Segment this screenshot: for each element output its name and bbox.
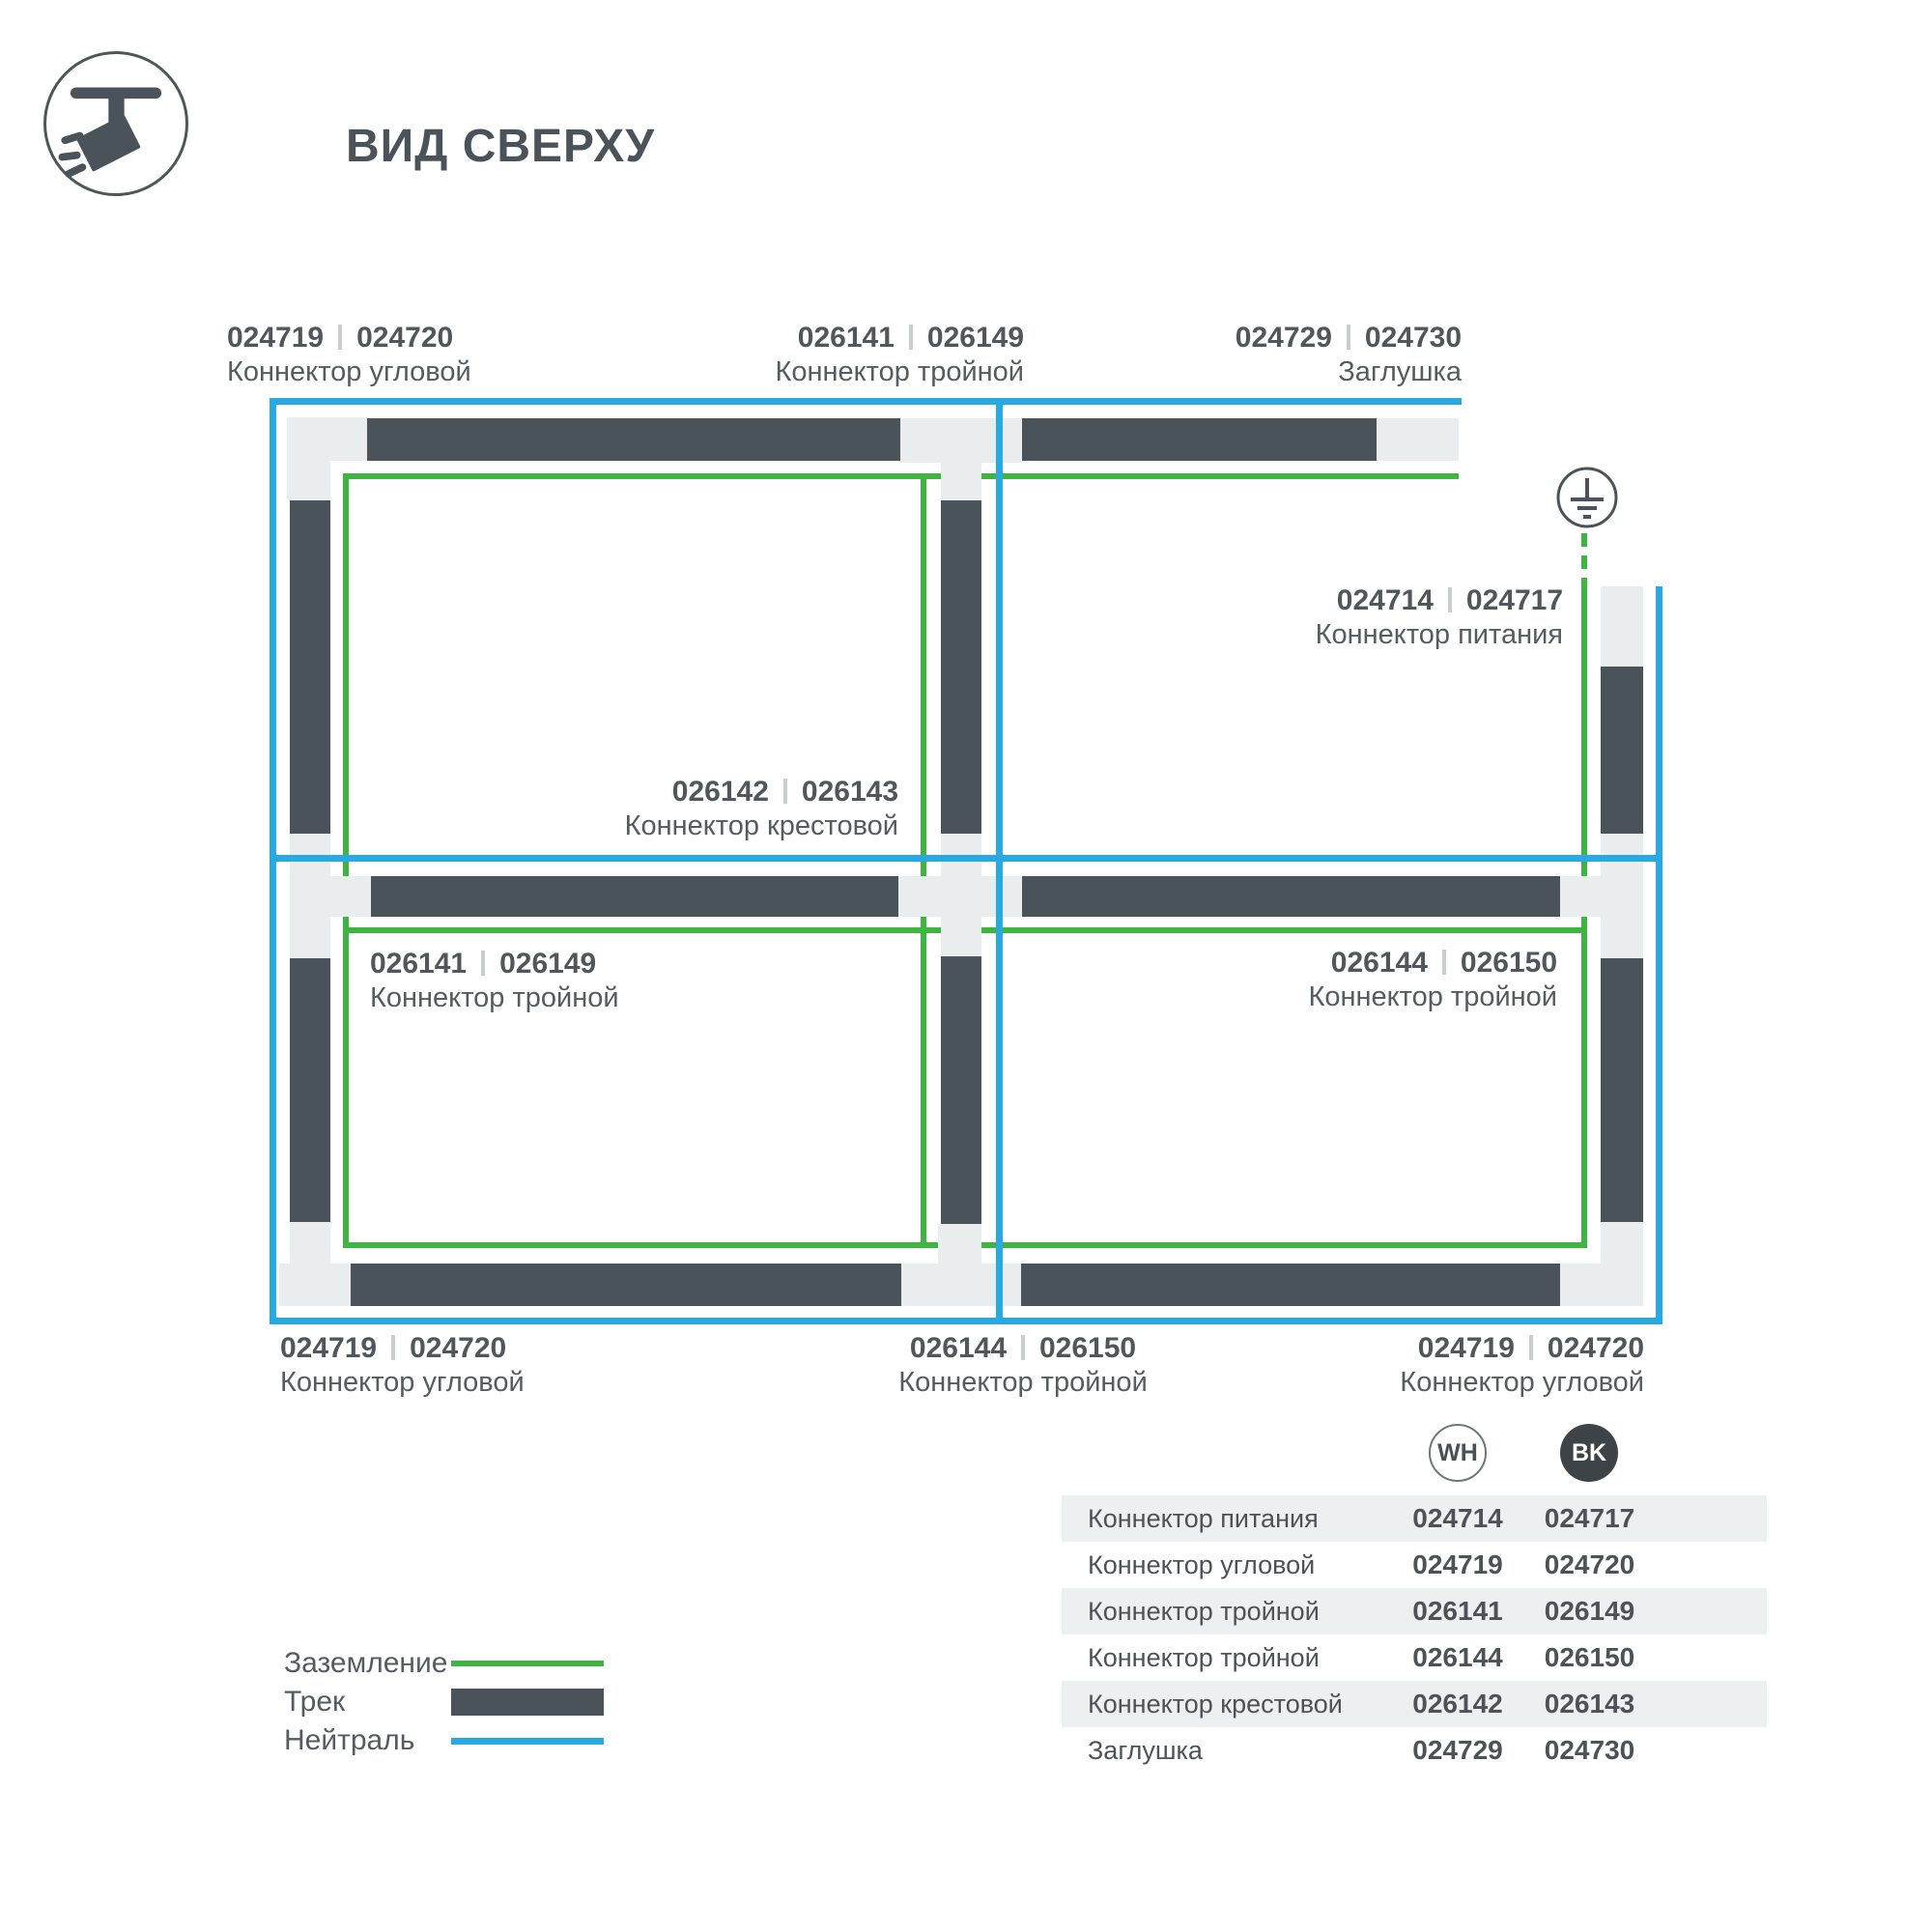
triple-connector-piece bbox=[938, 1224, 981, 1265]
label-top-left-corner: 024719024720 Коннектор угловой bbox=[227, 321, 471, 388]
triple-connector-piece bbox=[941, 463, 981, 500]
divider bbox=[1442, 950, 1446, 975]
track-segment bbox=[290, 958, 330, 1222]
table-row: Коннектор крестовой026142026143 bbox=[1062, 1681, 1767, 1727]
track-segment bbox=[1021, 1264, 1560, 1306]
neutral-line-swatch bbox=[451, 1738, 604, 1745]
label-bottom-right-corner: 024719024720 Коннектор угловой bbox=[1400, 1331, 1644, 1399]
corner-connector-piece bbox=[1560, 1264, 1643, 1306]
divider bbox=[481, 951, 485, 976]
ground-wire-dashed-lead bbox=[1581, 533, 1587, 586]
divider bbox=[338, 325, 342, 350]
legend-item-ground: Заземление bbox=[284, 1644, 604, 1683]
track-segment bbox=[941, 956, 981, 1224]
neutral-wire-middle bbox=[272, 855, 1660, 862]
power-connector-piece bbox=[1601, 586, 1643, 667]
divider bbox=[391, 1335, 395, 1360]
cross-connector-piece bbox=[941, 834, 981, 956]
neutral-wire-right bbox=[1656, 586, 1662, 1324]
earth-ground-icon bbox=[1555, 466, 1619, 529]
color-chip-black: BK bbox=[1560, 1424, 1618, 1482]
triple-connector-piece bbox=[901, 1264, 1021, 1306]
corner-connector-piece bbox=[287, 461, 330, 500]
label-left-triple: 026141026149 Коннектор тройной bbox=[370, 947, 619, 1014]
corner-connector-piece bbox=[279, 1264, 351, 1306]
legend: Заземление Трек Нейтраль bbox=[284, 1644, 604, 1760]
label-bottom-middle-triple: 026144026150 Коннектор тройной bbox=[897, 1331, 1149, 1399]
track-segment bbox=[1601, 667, 1643, 834]
label-power-connector: 024714024717 Коннектор питания bbox=[1316, 583, 1563, 651]
divider bbox=[783, 779, 787, 804]
track-spotlight-icon bbox=[43, 51, 188, 196]
track-spotlight-glyph bbox=[46, 54, 185, 193]
divider bbox=[909, 325, 913, 350]
corner-connector-piece bbox=[290, 1222, 330, 1265]
triple-connector-piece bbox=[290, 834, 330, 958]
parts-table: WH BK Коннектор питания024714024717 Конн… bbox=[1062, 1424, 1767, 1774]
parts-table-header: WH BK bbox=[1062, 1424, 1767, 1495]
track-segment bbox=[1022, 876, 1560, 917]
endcap-piece bbox=[1377, 418, 1459, 461]
page-title: ВИД СВЕРХУ bbox=[346, 120, 655, 173]
ground-wire-right bbox=[1581, 586, 1587, 1248]
track-segment bbox=[290, 500, 330, 834]
catalog-page: ВИД СВЕРХУ bbox=[0, 0, 1932, 1932]
label-cross-connector: 026142026143 Коннектор крестовой bbox=[625, 775, 898, 842]
ground-wire-top bbox=[344, 473, 1459, 479]
corner-connector-piece bbox=[1601, 1222, 1643, 1265]
divider bbox=[1021, 1335, 1025, 1360]
divider bbox=[1347, 325, 1350, 350]
neutral-wire-left bbox=[270, 398, 276, 1324]
table-row: Заглушка024729024730 bbox=[1062, 1727, 1767, 1774]
legend-item-neutral: Нейтраль bbox=[284, 1721, 604, 1760]
track-bar-swatch bbox=[451, 1689, 604, 1716]
track-segment bbox=[367, 418, 900, 461]
label-top-middle-triple: 026141026149 Коннектор тройной bbox=[775, 321, 1024, 388]
label-bottom-left-corner: 024719024720 Коннектор угловой bbox=[280, 1331, 525, 1399]
neutral-wire-center bbox=[996, 398, 1003, 1324]
table-row: Коннектор питания024714024717 bbox=[1062, 1495, 1767, 1542]
track-segment bbox=[1022, 418, 1377, 461]
color-chip-white: WH bbox=[1429, 1424, 1487, 1482]
track-segment bbox=[941, 500, 981, 834]
track-segment bbox=[351, 1264, 901, 1306]
track-segment bbox=[1601, 958, 1643, 1222]
neutral-wire-bottom bbox=[272, 1318, 1662, 1324]
table-row: Коннектор тройной026141026149 bbox=[1062, 1588, 1767, 1634]
triple-connector-piece bbox=[1601, 834, 1643, 958]
triple-connector-piece bbox=[1560, 876, 1601, 917]
triple-connector-piece bbox=[330, 876, 371, 917]
corner-connector-piece bbox=[287, 417, 367, 461]
divider bbox=[1448, 587, 1452, 612]
legend-item-track: Трек bbox=[284, 1683, 604, 1721]
ground-line-swatch bbox=[451, 1661, 604, 1666]
triple-connector-piece bbox=[900, 418, 1022, 463]
divider bbox=[1529, 1335, 1533, 1360]
label-top-right-endcap: 024729024730 Заглушка bbox=[1236, 321, 1462, 388]
label-right-triple: 026144026150 Коннектор тройной bbox=[1308, 946, 1557, 1013]
neutral-wire-top bbox=[272, 398, 1462, 405]
table-row: Коннектор тройной026144026150 bbox=[1062, 1634, 1767, 1681]
table-row: Коннектор угловой024719024720 bbox=[1062, 1542, 1767, 1588]
track-segment bbox=[371, 876, 898, 917]
